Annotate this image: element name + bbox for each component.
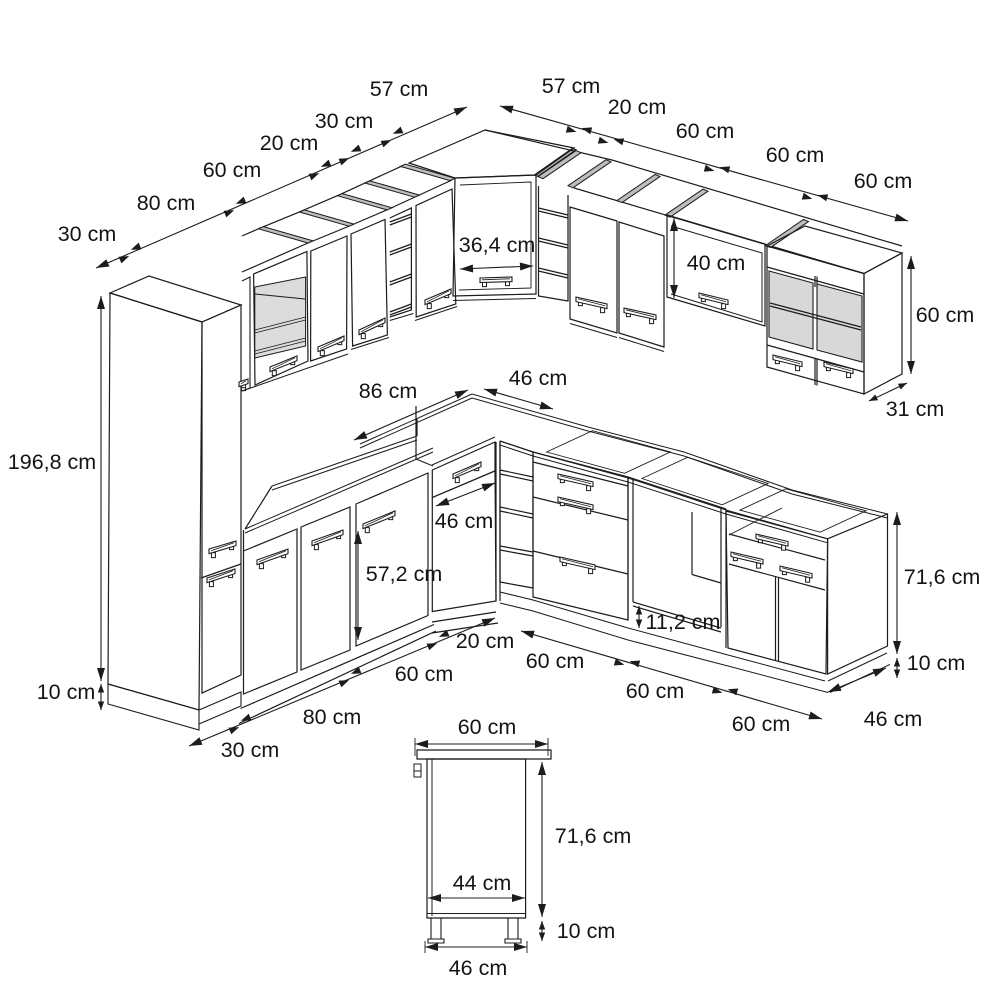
svg-text:57 cm: 57 cm	[370, 77, 429, 101]
svg-text:46 cm: 46 cm	[435, 509, 494, 533]
svg-text:71,6 cm: 71,6 cm	[904, 565, 980, 589]
svg-text:20 cm: 20 cm	[456, 629, 515, 653]
svg-text:60 cm: 60 cm	[458, 715, 517, 739]
svg-text:60 cm: 60 cm	[732, 712, 791, 736]
svg-text:46 cm: 46 cm	[449, 956, 508, 980]
svg-text:86 cm: 86 cm	[359, 379, 418, 403]
svg-text:10 cm: 10 cm	[907, 651, 966, 675]
svg-text:60 cm: 60 cm	[854, 169, 913, 193]
svg-text:60 cm: 60 cm	[526, 649, 585, 673]
svg-text:196,8 cm: 196,8 cm	[8, 450, 96, 474]
svg-text:30 cm: 30 cm	[58, 222, 117, 246]
svg-text:80 cm: 80 cm	[303, 705, 362, 729]
svg-text:36,4 cm: 36,4 cm	[459, 233, 535, 257]
svg-text:20 cm: 20 cm	[608, 95, 667, 119]
svg-text:80 cm: 80 cm	[137, 191, 196, 215]
svg-text:71,6 cm: 71,6 cm	[555, 824, 631, 848]
svg-text:57,2 cm: 57,2 cm	[366, 562, 442, 586]
svg-text:57 cm: 57 cm	[542, 74, 601, 98]
svg-text:10 cm: 10 cm	[557, 919, 616, 943]
svg-text:30 cm: 30 cm	[221, 738, 280, 762]
svg-text:60 cm: 60 cm	[766, 143, 825, 167]
svg-text:11,2 cm: 11,2 cm	[646, 610, 721, 634]
svg-text:44 cm: 44 cm	[453, 871, 512, 895]
svg-text:46 cm: 46 cm	[864, 707, 923, 731]
svg-text:60 cm: 60 cm	[395, 662, 454, 686]
svg-text:31 cm: 31 cm	[886, 397, 945, 421]
svg-text:46 cm: 46 cm	[509, 366, 568, 390]
svg-text:60 cm: 60 cm	[203, 158, 262, 182]
svg-text:60 cm: 60 cm	[916, 303, 975, 327]
svg-text:60 cm: 60 cm	[626, 679, 685, 703]
svg-text:60 cm: 60 cm	[676, 119, 735, 143]
svg-text:40 cm: 40 cm	[687, 251, 746, 275]
svg-text:10 cm: 10 cm	[37, 680, 96, 704]
svg-text:20 cm: 20 cm	[260, 131, 319, 155]
svg-text:30 cm: 30 cm	[315, 109, 374, 133]
